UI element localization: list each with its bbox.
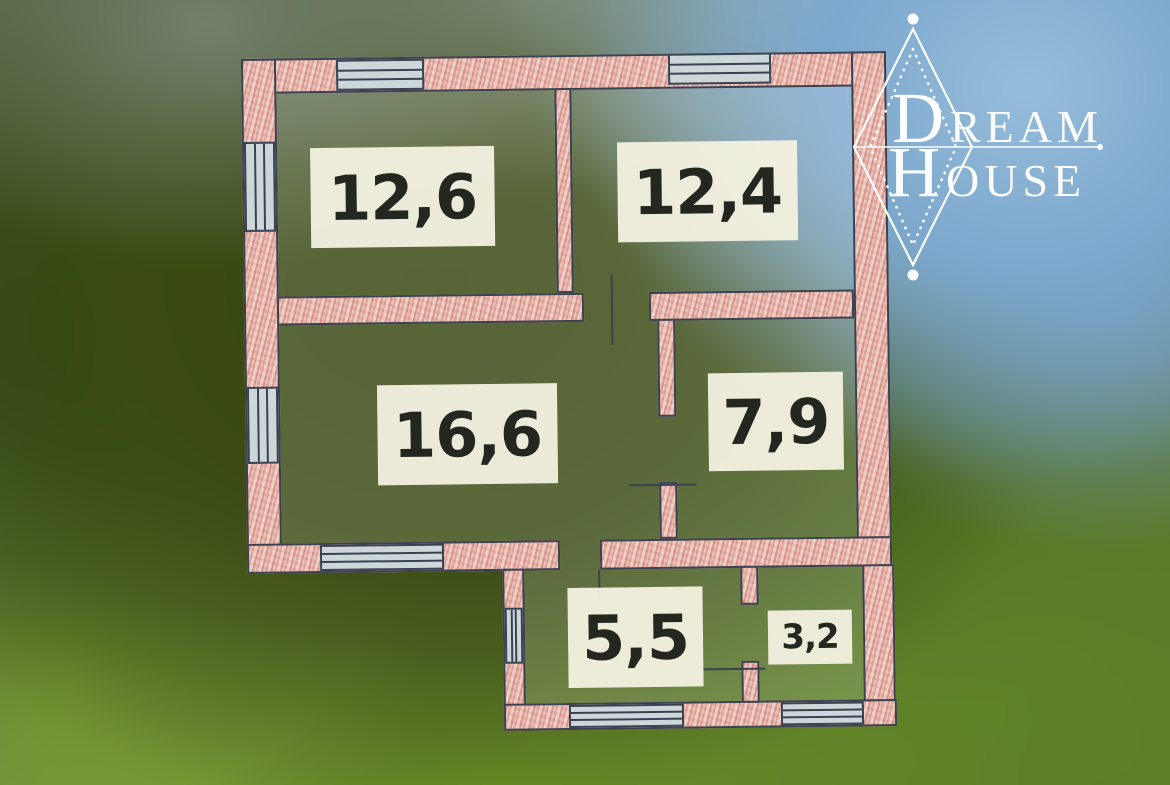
- window-top-1: [336, 59, 424, 91]
- floor-plan: 12,6 12,4 16,6 7,9 5,5 3,2: [236, 36, 905, 744]
- diamond-logo-graphic: DREAM HOUSE: [828, 2, 1128, 302]
- window-bottom-main: [320, 544, 444, 572]
- area-value: 12,6: [328, 160, 478, 235]
- window-left-1: [244, 142, 276, 232]
- room-area-label-3-2: 3,2: [768, 610, 853, 665]
- window-left-2: [247, 387, 279, 464]
- area-value: 3,2: [781, 617, 839, 658]
- window-annex-left: [505, 608, 524, 664]
- room-area-label-5-5: 5,5: [567, 586, 703, 688]
- room-area-label-7-9: 7,9: [708, 372, 844, 472]
- wall-left: [241, 59, 282, 574]
- wall-middle-left-segment: [277, 293, 584, 326]
- wall-divider-mid-rooms-upper: [657, 319, 676, 417]
- room-area-label-12-6: 12,6: [310, 146, 495, 248]
- annex-divider-upper: [740, 566, 758, 605]
- wall-divider-top-rooms: [554, 88, 574, 293]
- screenshot-root: 12,6 12,4 16,6 7,9 5,5 3,2 DREAM: [0, 0, 1170, 785]
- area-value: 16,6: [393, 397, 543, 472]
- wall-divider-mid-rooms-lower: [659, 482, 678, 539]
- area-value: 12,4: [633, 154, 783, 229]
- area-value: 5,5: [582, 600, 690, 674]
- wall-bottom-right-segment: [600, 536, 892, 570]
- annex-wall-right: [862, 564, 896, 701]
- window-annex-bottom-1: [569, 704, 684, 728]
- diamond-bottom-dot: [908, 270, 919, 281]
- diamond-top-dot: [908, 14, 919, 25]
- room-area-label-12-4: 12,4: [617, 140, 798, 242]
- window-annex-bottom-2: [781, 701, 864, 725]
- dream-house-logo: DREAM HOUSE: [828, 2, 1128, 302]
- wall-middle-right-segment: [649, 290, 854, 322]
- area-value: 7,9: [722, 384, 830, 458]
- window-top-2: [668, 53, 771, 85]
- room-area-label-16-6: 16,6: [377, 383, 558, 485]
